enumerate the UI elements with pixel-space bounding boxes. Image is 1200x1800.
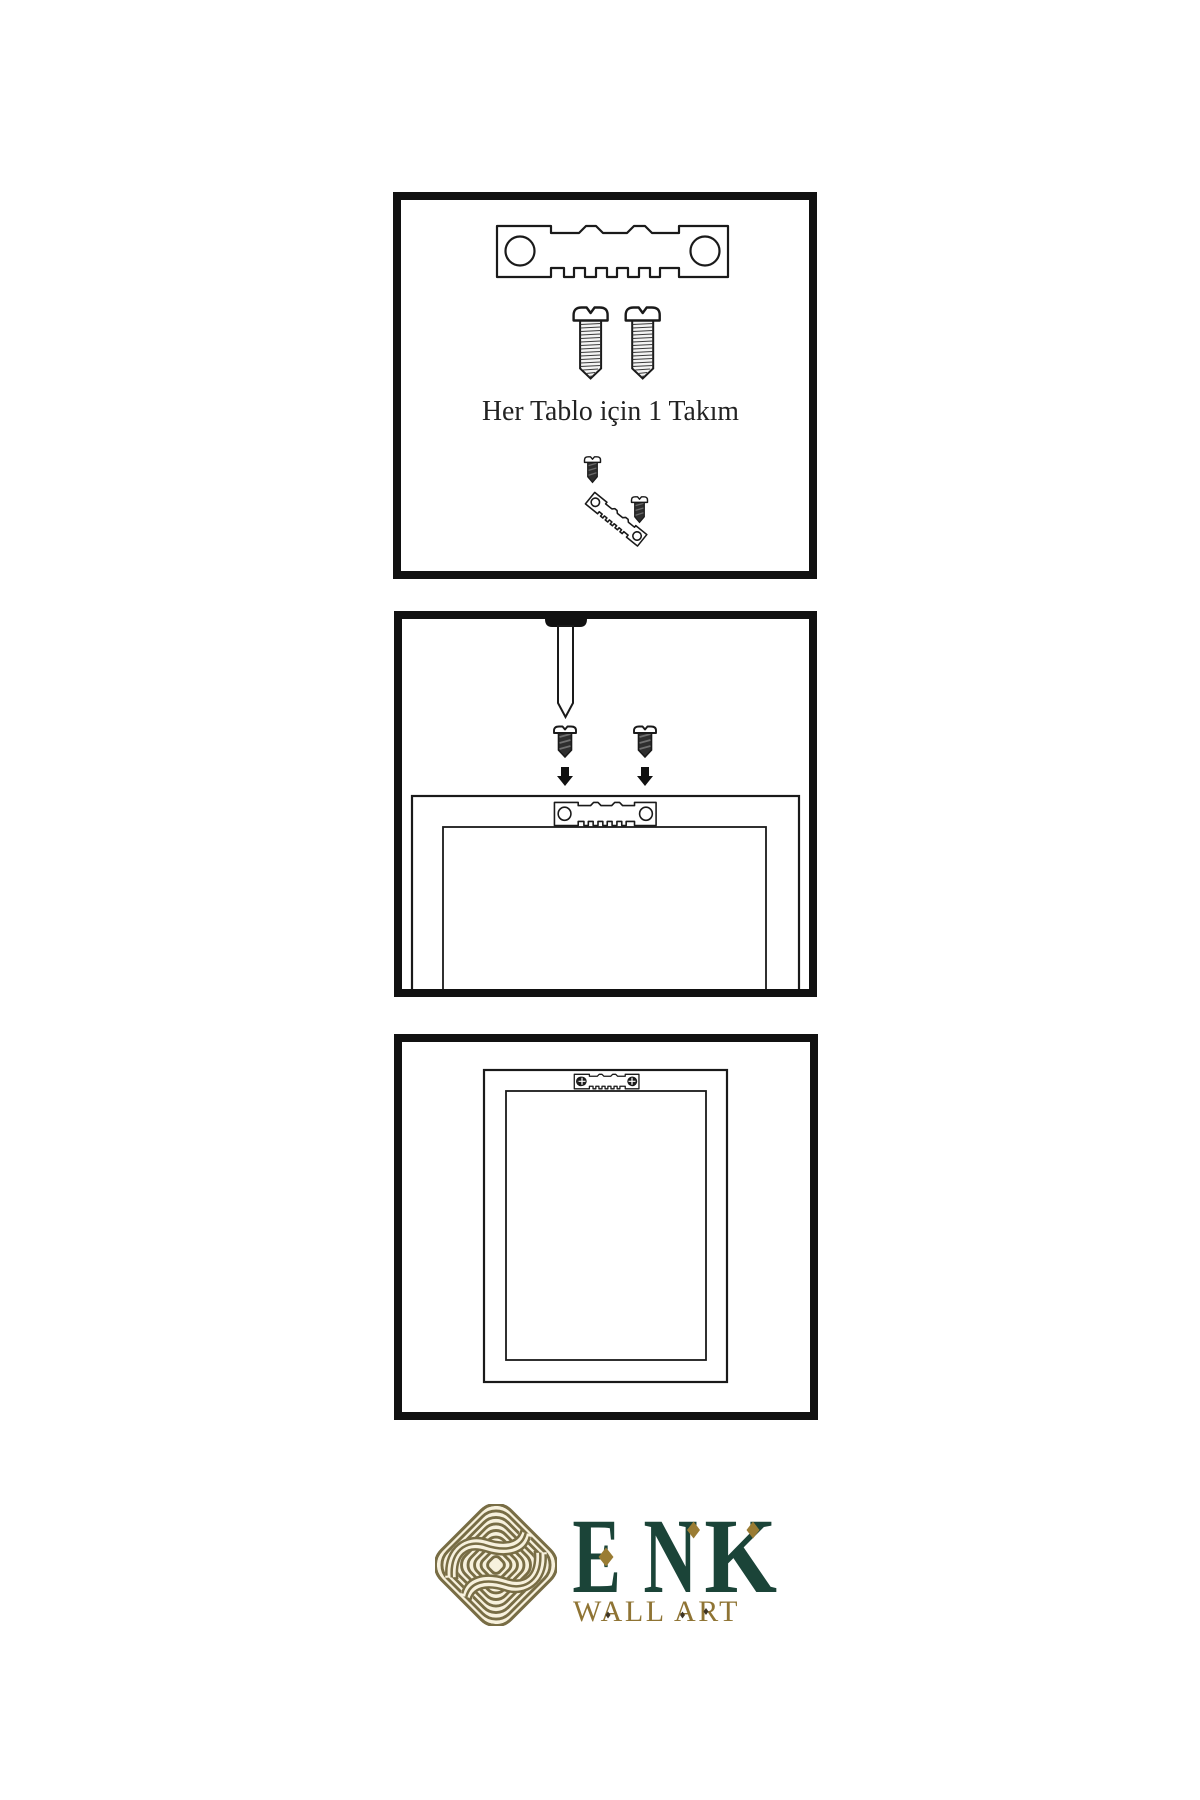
svg-text:WALL ART: WALL ART (573, 1595, 740, 1628)
svg-text:Her Tablo için 1 Takım: Her Tablo için 1 Takım (482, 396, 739, 427)
